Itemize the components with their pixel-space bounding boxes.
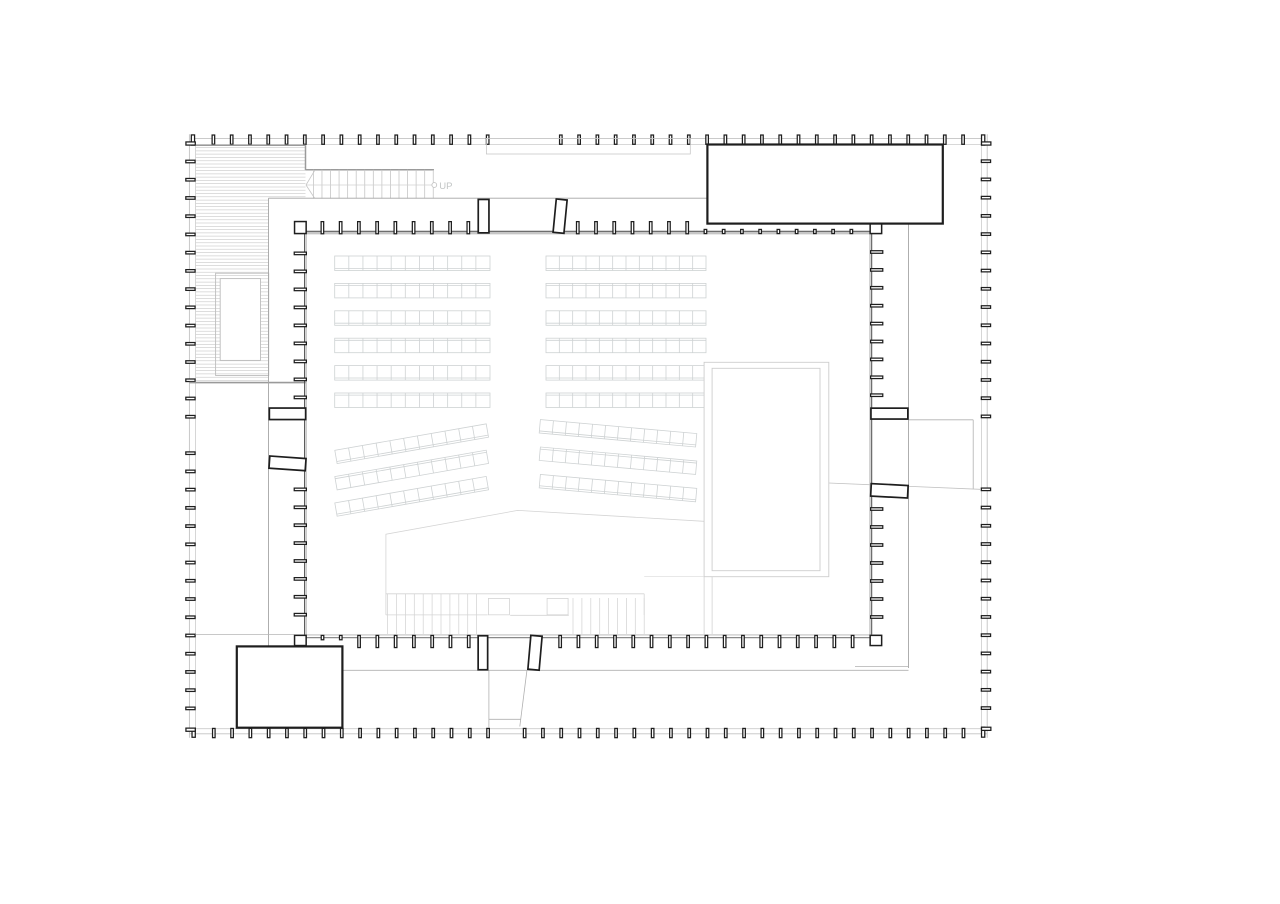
svg-text:UP: UP — [439, 181, 452, 192]
